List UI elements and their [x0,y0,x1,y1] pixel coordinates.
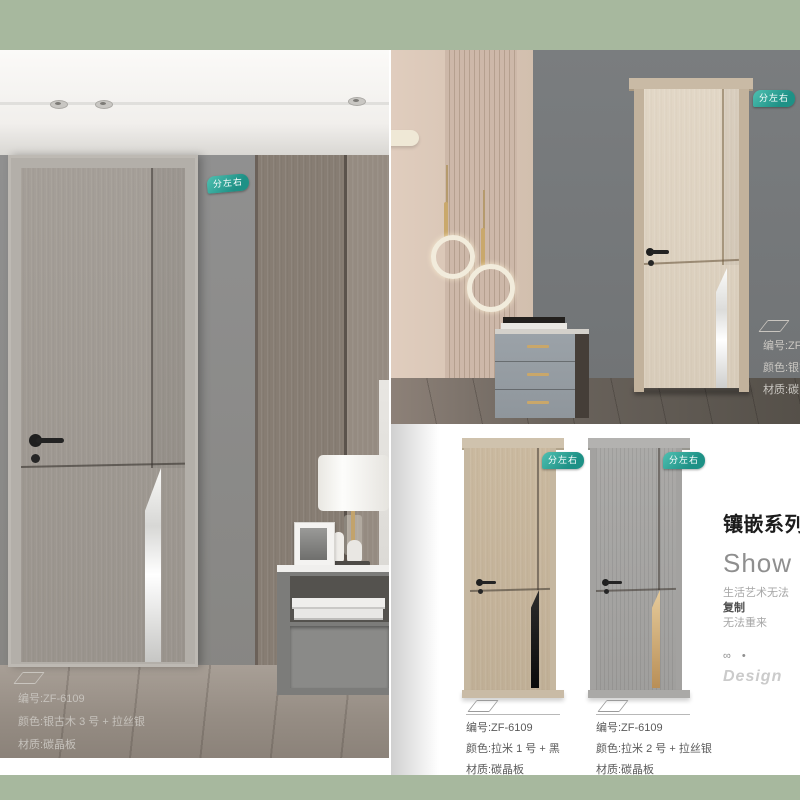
photo-frame [294,522,335,568]
top-sage-strip [0,0,800,50]
door-jamb [634,89,644,392]
product-b-sill [588,690,690,698]
door-handle-lever [480,581,496,584]
door-right-column [724,89,739,265]
split-door-badge: 分左右 [542,452,584,469]
door-plan-icon [13,672,44,684]
product-b-jamb [676,448,682,692]
table-lamp-shade [318,455,389,511]
left-door-right-column [153,168,185,468]
door-plan-icon [467,700,498,712]
side-table-drawer [290,626,389,688]
top-right-scene-photo: 分左右 编号:ZF-6 颜色:银古 材质:碳晶 [391,50,800,424]
cabinet-handle-icon [527,345,549,348]
series-tagline: 无法重来 [723,614,767,630]
photo-frame-picture [300,528,327,560]
vase [347,540,362,562]
door-material: 材质:碳晶板 [466,761,566,775]
cabinet-drawer-seam [495,361,575,362]
series-subtitle: Show [723,548,792,579]
pendant-rod [481,228,485,266]
product-b-vertical-groove [658,448,660,590]
door-color: 颜色:拉米 1 号 + 黑 [466,740,566,756]
door-code: 编号:ZF-6109 [596,719,706,735]
door-material: 材质:碳晶板 [596,761,706,775]
door-handle-lever [651,250,669,254]
spotlight-icon [95,100,113,109]
book [294,609,383,620]
wall-lamp-icon [391,130,419,146]
door-vertical-groove [722,89,724,265]
wood-panel-edge [255,155,258,668]
door-lock-icon [31,454,40,463]
product-b-label: 编号:ZF-6109 颜色:拉米 2 号 + 拉丝银 材质:碳晶板 [596,700,706,775]
decorative-symbols: ∞ • [723,650,750,662]
door-handle-lever [36,438,64,443]
left-shadow [391,424,439,775]
series-title: 镶嵌系列 [723,508,800,537]
door-code: 编号:ZF-6 [763,337,800,353]
catalog-page: 分左右 编号:ZF-6109 颜色:银古木 3 号 + 拉丝银 材质:碳晶板 [0,0,800,800]
pendant-cord [483,190,485,230]
pendant-cord [446,165,448,205]
door-color: 颜色:银古 [763,359,800,375]
door-handle-lever [606,581,622,584]
product-a-jamb [550,448,556,692]
cabinet-handle-icon [527,373,549,376]
left-door-vertical-groove [151,168,153,468]
label-divider [596,714,690,715]
product-a-vertical-groove [537,448,539,590]
door-lock-icon [604,589,609,594]
bottom-sage-strip [0,775,800,800]
door-color: 颜色:银古木 3 号 + 拉丝银 [18,713,145,729]
door-lock-icon [648,260,654,266]
door-plan-icon [758,320,789,332]
door-lock-icon [478,589,483,594]
left-door-spec: 编号:ZF-6109 颜色:银古木 3 号 + 拉丝银 材质:碳晶板 [18,672,145,752]
side-table-top [277,565,389,572]
door-code: 编号:ZF-6109 [466,719,566,735]
door-color: 颜色:拉米 2 号 + 拉丝银 [596,740,706,756]
series-tagline: 生活艺术无法 [723,584,789,600]
book [292,598,385,609]
series-tagline: 复制 [723,599,745,615]
ring-light-icon [431,235,475,279]
product-section: 分左右 分左右 编号:ZF-6109 颜色:拉米 1 号 + 黑 材质:碳晶板 … [391,424,800,775]
spotlight-icon [50,100,68,109]
door-code: 编号:ZF-6109 [18,690,145,706]
door-material: 材质:碳晶板 [18,736,145,752]
split-door-badge: 分左右 [753,90,795,107]
spotlight-icon [348,97,366,106]
pendant-rod [444,202,448,238]
door-plan-icon [597,700,628,712]
product-a-sill [462,690,564,698]
split-door-badge: 分左右 [663,452,705,469]
door-material: 材质:碳晶 [763,381,800,397]
cabinet-drawer-seam [495,389,575,390]
door-shadow [634,388,750,395]
product-a-label: 编号:ZF-6109 颜色:拉米 1 号 + 黑 材质:碳晶板 [466,700,566,775]
door-jamb [739,89,749,392]
ring-light-icon [467,264,515,312]
design-watermark: Design [723,668,782,686]
product-b-door [596,448,676,690]
cabinet-side [575,334,589,418]
left-scene-photo: 分左右 编号:ZF-6109 颜色:银古木 3 号 + 拉丝银 材质:碳晶板 [0,50,389,758]
door-spec-clipped: 编号:ZF-6 颜色:银古 材质:碳晶 [763,320,800,397]
ceiling [0,50,389,155]
label-divider [466,714,560,715]
cabinet-handle-icon [527,401,549,404]
